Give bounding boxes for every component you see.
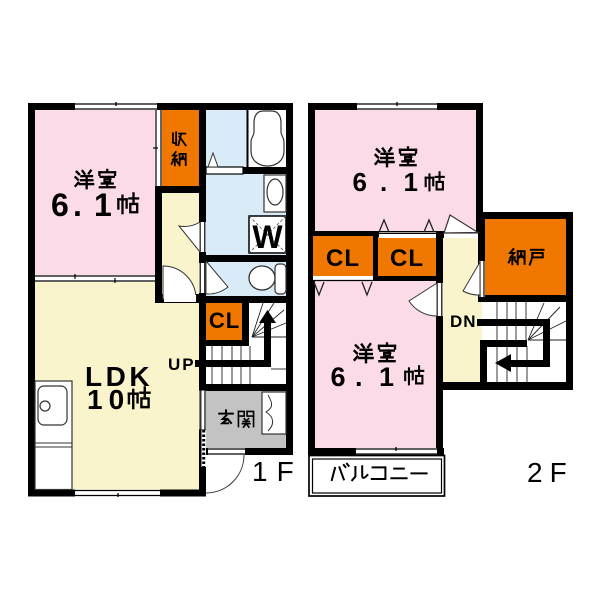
- svg-text:W: W: [252, 219, 283, 255]
- svg-text:6: 6: [353, 167, 367, 197]
- svg-text:1: 1: [379, 362, 394, 392]
- svg-text:UP: UP: [168, 355, 196, 374]
- svg-text:1: 1: [94, 187, 112, 223]
- svg-text:6: 6: [51, 187, 69, 223]
- svg-text:CL: CL: [390, 245, 424, 272]
- svg-text:CL: CL: [209, 308, 240, 333]
- svg-text:.: .: [380, 167, 387, 197]
- svg-text:DN: DN: [450, 312, 477, 331]
- svg-text:6: 6: [331, 362, 346, 392]
- svg-text:10: 10: [87, 384, 130, 415]
- svg-text:.: .: [73, 187, 82, 223]
- svg-text:1F: 1F: [252, 456, 303, 487]
- svg-text:CL: CL: [326, 245, 360, 272]
- svg-text:2F: 2F: [527, 457, 574, 488]
- svg-text:1: 1: [404, 167, 418, 197]
- svg-text:.: .: [355, 362, 363, 392]
